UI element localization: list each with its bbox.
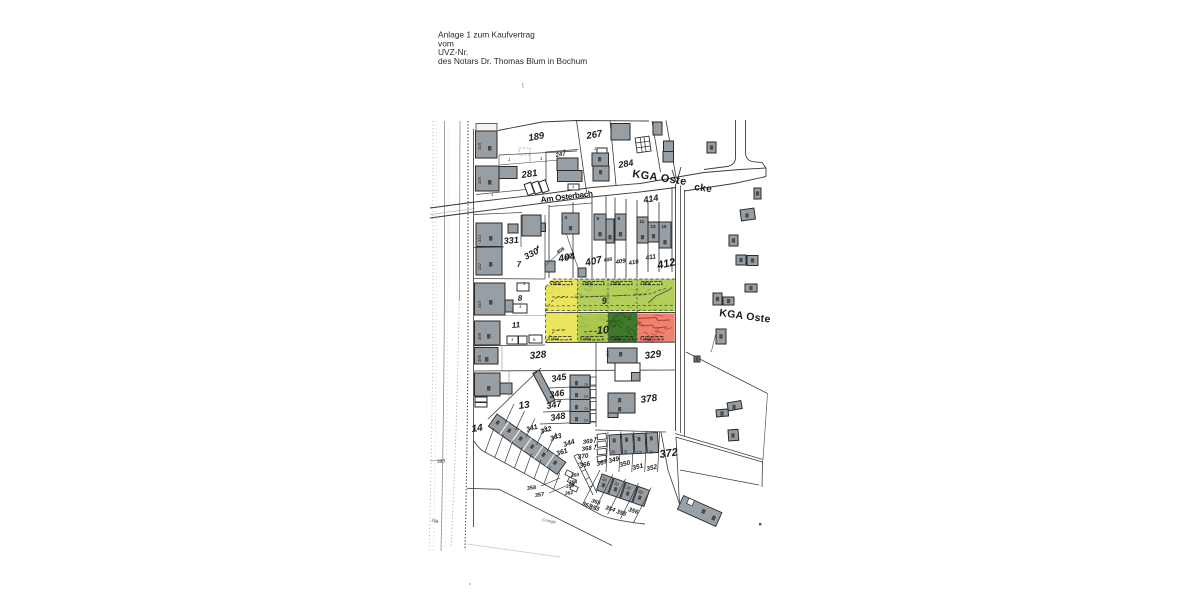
svg-text:cke: cke: [694, 182, 713, 195]
svg-text:151/3: 151/3: [585, 282, 593, 286]
svg-text:360: 360: [571, 472, 580, 479]
svg-text:281: 281: [520, 168, 538, 181]
svg-text:312: 312: [477, 262, 482, 270]
svg-text:314: 314: [477, 234, 482, 242]
svg-text:372: 372: [659, 447, 679, 461]
svg-text:316: 316: [477, 176, 482, 184]
svg-text:9: 9: [601, 296, 607, 306]
svg-text:11: 11: [640, 219, 645, 224]
svg-text:151/4: 151/4: [613, 337, 621, 341]
svg-text:151/4: 151/4: [643, 337, 651, 341]
svg-text:362: 362: [565, 490, 574, 497]
svg-text:des Notars Dr. Thomas Blum in: des Notars Dr. Thomas Blum in Bochum: [438, 56, 587, 66]
svg-text:151/3: 151/3: [613, 282, 621, 286]
svg-text:1: 1: [594, 146, 596, 151]
svg-text:1: 1: [572, 184, 574, 189]
svg-text:318: 318: [477, 142, 482, 150]
svg-text:306: 306: [477, 354, 482, 362]
svg-text:331: 331: [503, 235, 519, 246]
svg-text:151/3: 151/3: [643, 282, 651, 286]
svg-text:1: 1: [508, 157, 510, 162]
svg-text:310: 310: [477, 300, 482, 308]
svg-text:1: 1: [710, 348, 712, 353]
svg-text:10: 10: [596, 324, 610, 337]
svg-text:11: 11: [511, 320, 521, 330]
svg-text:14: 14: [471, 422, 484, 435]
svg-text:13: 13: [518, 399, 531, 412]
svg-text:15: 15: [662, 224, 668, 229]
svg-text:151/4: 151/4: [583, 337, 591, 341]
svg-text:1: 1: [563, 148, 565, 153]
svg-text:358: 358: [527, 485, 538, 492]
svg-text:13: 13: [651, 224, 657, 229]
svg-text:1: 1: [491, 192, 493, 197]
svg-text:328: 328: [529, 349, 547, 362]
svg-text:1m: 1m: [636, 450, 642, 455]
svg-text:1: 1: [540, 156, 542, 161]
svg-text:606: 606: [606, 350, 610, 357]
svg-text:1: 1: [519, 304, 521, 309]
svg-text:151/3: 151/3: [553, 282, 561, 286]
svg-text:359: 359: [566, 483, 575, 490]
svg-text:2a: 2a: [583, 383, 588, 387]
svg-text:2l: 2l: [624, 450, 627, 455]
svg-text:1: 1: [511, 337, 513, 342]
svg-text:1: 1: [523, 281, 525, 286]
svg-text:151/4: 151/4: [551, 337, 559, 341]
svg-text:393: 393: [437, 458, 446, 465]
svg-text:2a: 2a: [583, 419, 588, 423]
svg-text:308: 308: [477, 332, 482, 340]
svg-text:2a: 2a: [583, 407, 588, 411]
svg-text:357: 357: [535, 492, 546, 499]
svg-text:2a: 2a: [583, 395, 588, 399]
svg-text:2o: 2o: [649, 450, 654, 455]
